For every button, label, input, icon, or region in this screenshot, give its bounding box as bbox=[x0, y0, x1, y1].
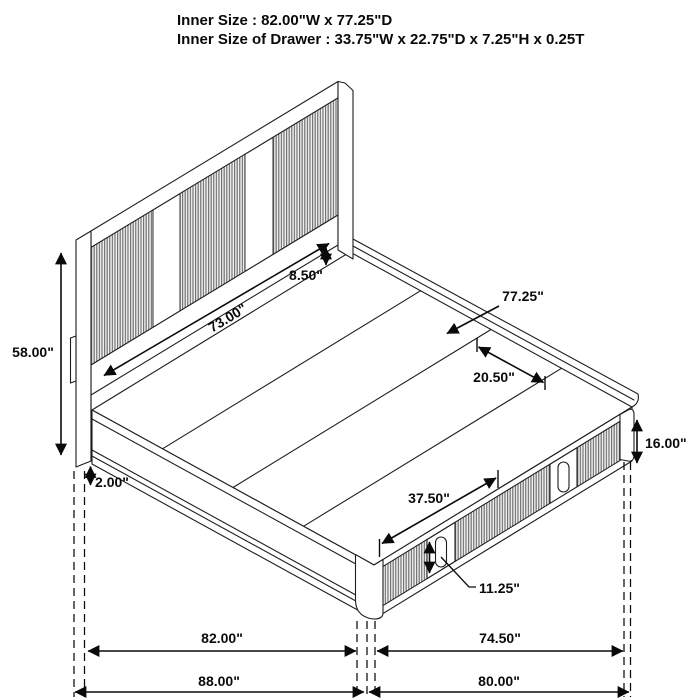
slat-width-label: 20.50" bbox=[473, 369, 515, 385]
footboard-inner-depth-label: 74.50" bbox=[479, 630, 521, 646]
right-corner-post bbox=[620, 409, 634, 461]
headboard-left-leg bbox=[76, 231, 91, 467]
outer-depth-label: 80.00" bbox=[478, 673, 520, 689]
headboard-gap-label: 8.50" bbox=[289, 267, 323, 283]
drawer-handle-far bbox=[558, 462, 569, 492]
drawer-handle-near bbox=[436, 537, 447, 567]
inner-width-label: 82.00" bbox=[201, 630, 243, 646]
drawer-front-height-label: 11.25" bbox=[479, 580, 520, 596]
drawer-inner-size-title: Inner Size of Drawer : 33.75"W x 22.75"D… bbox=[177, 31, 584, 48]
dim-headboard-height: 58.00" bbox=[12, 253, 61, 455]
dim-platform-height: 16.00" bbox=[637, 420, 687, 463]
dim-footboard-inner-depth: 74.50" bbox=[377, 630, 623, 651]
dim-inner-width: 82.00" bbox=[88, 630, 356, 651]
leg-height-label: 2.00" bbox=[95, 474, 129, 490]
dim-outer-depth: 80.00" bbox=[369, 673, 629, 692]
bed-dimension-diagram: Inner Size : 82.00"W x 77.25"D Inner Siz… bbox=[0, 0, 700, 700]
drawer-front-width-label: 37.50" bbox=[408, 490, 450, 506]
dim-outer-width: 88.00" bbox=[75, 673, 364, 692]
dim-deck-depth: 77.25" bbox=[447, 288, 544, 334]
headboard-height-label: 58.00" bbox=[12, 344, 54, 360]
headboard-rail-bracket bbox=[71, 336, 77, 383]
deck-depth-label: 77.25" bbox=[502, 288, 544, 304]
diagram-canvas: Inner Size : 82.00"W x 77.25"D Inner Siz… bbox=[0, 0, 700, 700]
front-corner-post bbox=[356, 555, 384, 620]
inner-size-title: Inner Size : 82.00"W x 77.25"D bbox=[177, 12, 392, 29]
platform-height-label: 16.00" bbox=[645, 435, 687, 451]
headboard-right-leg bbox=[338, 82, 353, 260]
outer-width-label: 88.00" bbox=[198, 673, 240, 689]
